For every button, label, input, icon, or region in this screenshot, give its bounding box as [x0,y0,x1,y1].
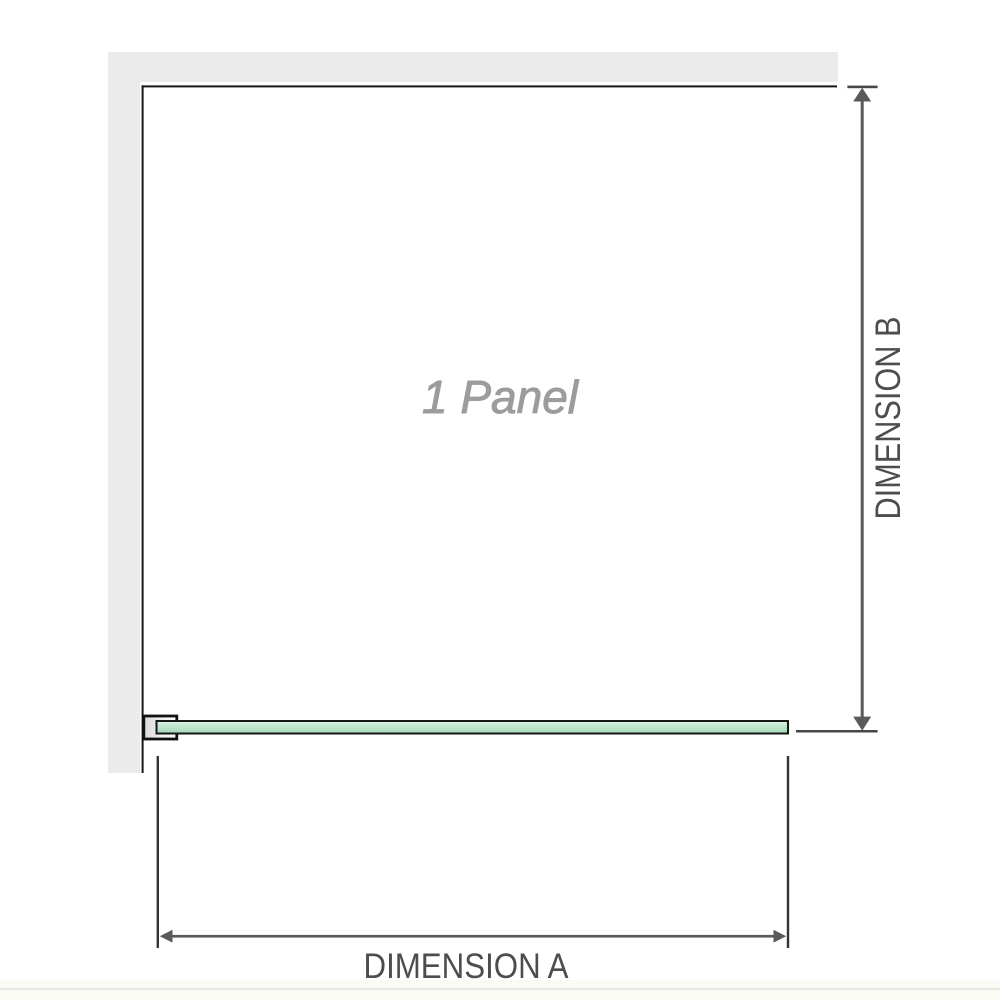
svg-text:1 Panel: 1 Panel [422,371,580,423]
svg-text:DIMENSION B: DIMENSION B [868,317,908,520]
